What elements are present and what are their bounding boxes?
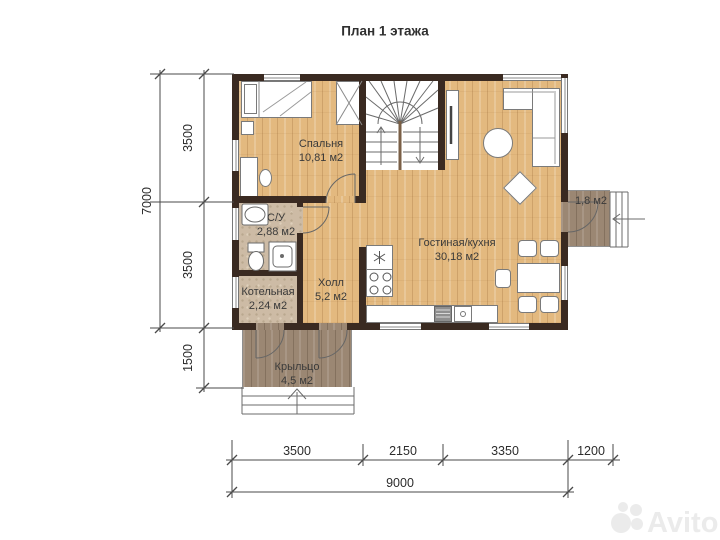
door-opening-boiler-porch (256, 323, 284, 330)
window-right-dining (561, 266, 568, 300)
door-opening-bathroom (297, 207, 303, 233)
room-area: 10,81 м2 (299, 151, 343, 165)
avito-logo-circle (631, 518, 643, 530)
avito-logo-circle (611, 513, 631, 533)
room-area: 30,18 м2 (418, 250, 495, 264)
door-opening-bedroom (326, 196, 355, 203)
room-label-entry: 1,8 м2 (575, 194, 607, 208)
wall-bathroom-boiler (239, 270, 303, 276)
room-name: С/У (257, 211, 295, 225)
dim-bottom-seg-1: 3500 (283, 444, 311, 458)
coffee-table (483, 128, 513, 158)
window-bottom-kitchen-2 (489, 323, 529, 330)
entry-direction-arrow (613, 214, 645, 224)
room-area: 2,24 м2 (241, 299, 294, 313)
dining-chair (495, 269, 511, 288)
room-label-hall: Холл 5,2 м2 (315, 276, 347, 304)
tv-stand (446, 90, 459, 160)
stairwell-area (366, 81, 438, 170)
room-name: Гостиная/кухня (418, 236, 495, 250)
sink-drainer (434, 306, 452, 322)
wall-stairs-east (438, 74, 445, 170)
floor-plan-canvas: План 1 этажа (0, 0, 720, 540)
dining-chair (540, 296, 559, 313)
sofa-section-top (503, 88, 533, 110)
room-area: 4,5 м2 (275, 374, 320, 388)
room-label-bathroom: С/У 2,88 м2 (257, 211, 295, 239)
room-label-living: Гостиная/кухня 30,18 м2 (418, 236, 495, 264)
window-left-bathroom (232, 208, 239, 240)
room-label-bedroom: Спальня 10,81 м2 (299, 137, 343, 165)
room-name: Холл (315, 276, 347, 290)
kitchen-sink (454, 306, 472, 322)
fridge (366, 245, 393, 270)
porch-steps (242, 387, 354, 414)
wall-bedroom-stairs (359, 81, 366, 203)
dim-left-seg-1: 3500 (181, 124, 195, 152)
dining-table (517, 263, 560, 293)
avito-watermark: Avito (611, 502, 718, 539)
door-opening-entry (561, 202, 568, 232)
window-top-bedroom (264, 74, 300, 81)
dining-chair (540, 240, 559, 257)
room-name: Спальня (299, 137, 343, 151)
dim-left-total: 7000 (140, 187, 154, 215)
bed-pillow (244, 84, 257, 114)
room-name: Котельная (241, 285, 294, 299)
window-top-living (503, 74, 561, 81)
room-label-porch: Крыльцо 4,5 м2 (275, 360, 320, 388)
room-area: 5,2 м2 (315, 290, 347, 304)
door-opening-main-entrance (319, 323, 347, 330)
dining-chair (518, 296, 537, 313)
dim-bottom-seg-3: 3350 (491, 444, 519, 458)
dim-left-seg-2: 3500 (181, 251, 195, 279)
kitchen-counter (366, 305, 498, 323)
room-label-boiler: Котельная 2,24 м2 (241, 285, 294, 313)
window-left-bedroom (232, 140, 239, 171)
dim-bottom-seg-2: 2150 (389, 444, 417, 458)
wall-hall-kitchen (359, 247, 366, 323)
desk (240, 157, 258, 199)
nightstand (241, 121, 254, 135)
stove (366, 269, 393, 297)
room-area: 1,8 м2 (575, 194, 607, 208)
dining-chair (518, 240, 537, 257)
avito-wordmark: Avito (647, 507, 718, 539)
room-name: Крыльцо (275, 360, 320, 374)
window-left-boiler (232, 277, 239, 308)
entry-steps (610, 192, 645, 247)
window-right-living-top (561, 78, 568, 133)
avito-logo-circle (630, 504, 642, 516)
window-bottom-kitchen-1 (380, 323, 421, 330)
dim-left-seg-3: 1500 (181, 344, 195, 372)
avito-logo-circle (618, 502, 628, 512)
dim-bottom-seg-4: 1200 (577, 444, 605, 458)
dim-bottom-total: 9000 (386, 476, 414, 490)
page-title: План 1 этажа (341, 24, 429, 39)
porch-direction-arrow (288, 389, 306, 414)
room-area: 2,88 м2 (257, 225, 295, 239)
sofa-section-right (532, 88, 560, 167)
